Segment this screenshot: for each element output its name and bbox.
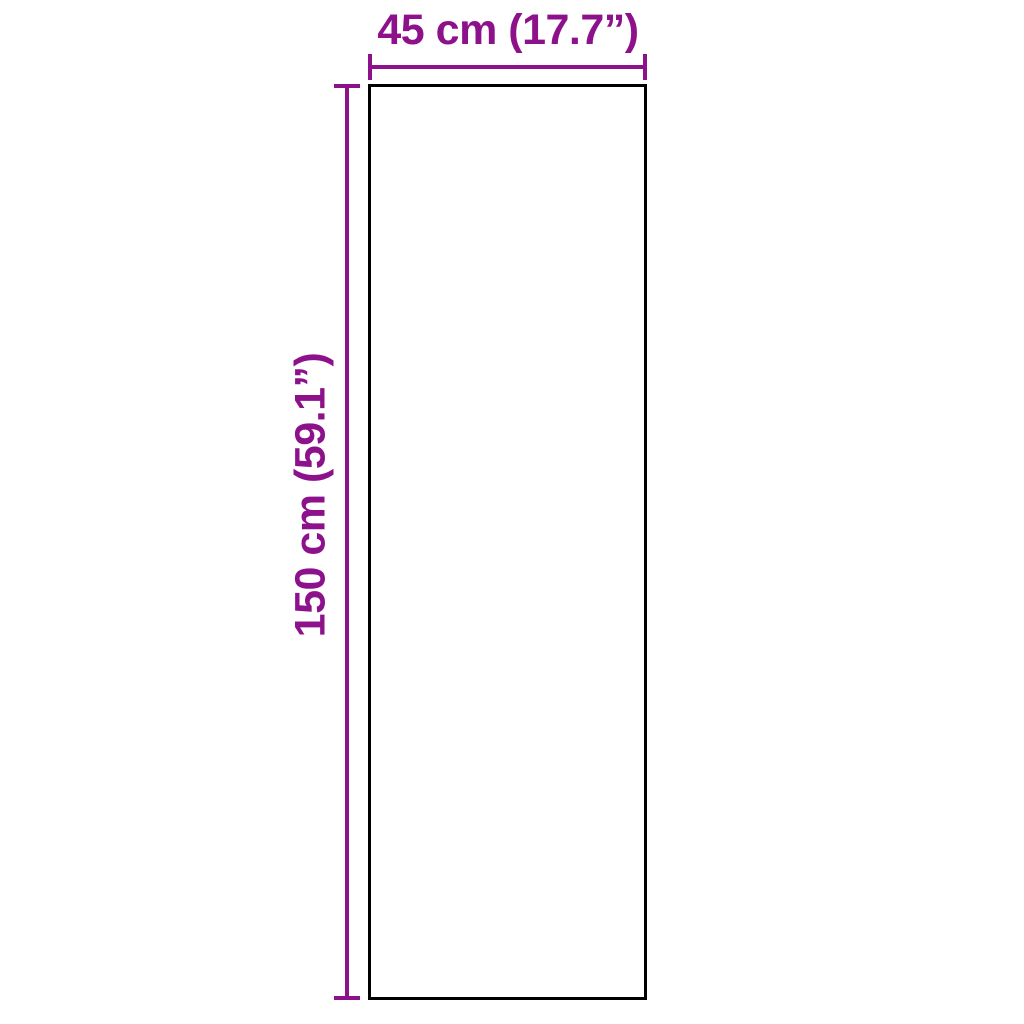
width-dimension-tick-left — [368, 54, 372, 80]
height-dimension-line — [345, 84, 349, 1000]
dimension-diagram: 45 cm (17.7”) 150 cm (59.1”) — [0, 0, 1024, 1024]
width-dimension-tick-right — [643, 54, 647, 80]
product-outline-rectangle — [368, 84, 647, 1000]
width-dimension-line — [368, 65, 647, 69]
height-dimension-tick-top — [334, 84, 360, 88]
height-dimension-tick-bottom — [334, 996, 360, 1000]
height-dimension-label: 150 cm (59.1”) — [290, 353, 333, 638]
width-dimension-label: 45 cm (17.7”) — [343, 8, 673, 53]
